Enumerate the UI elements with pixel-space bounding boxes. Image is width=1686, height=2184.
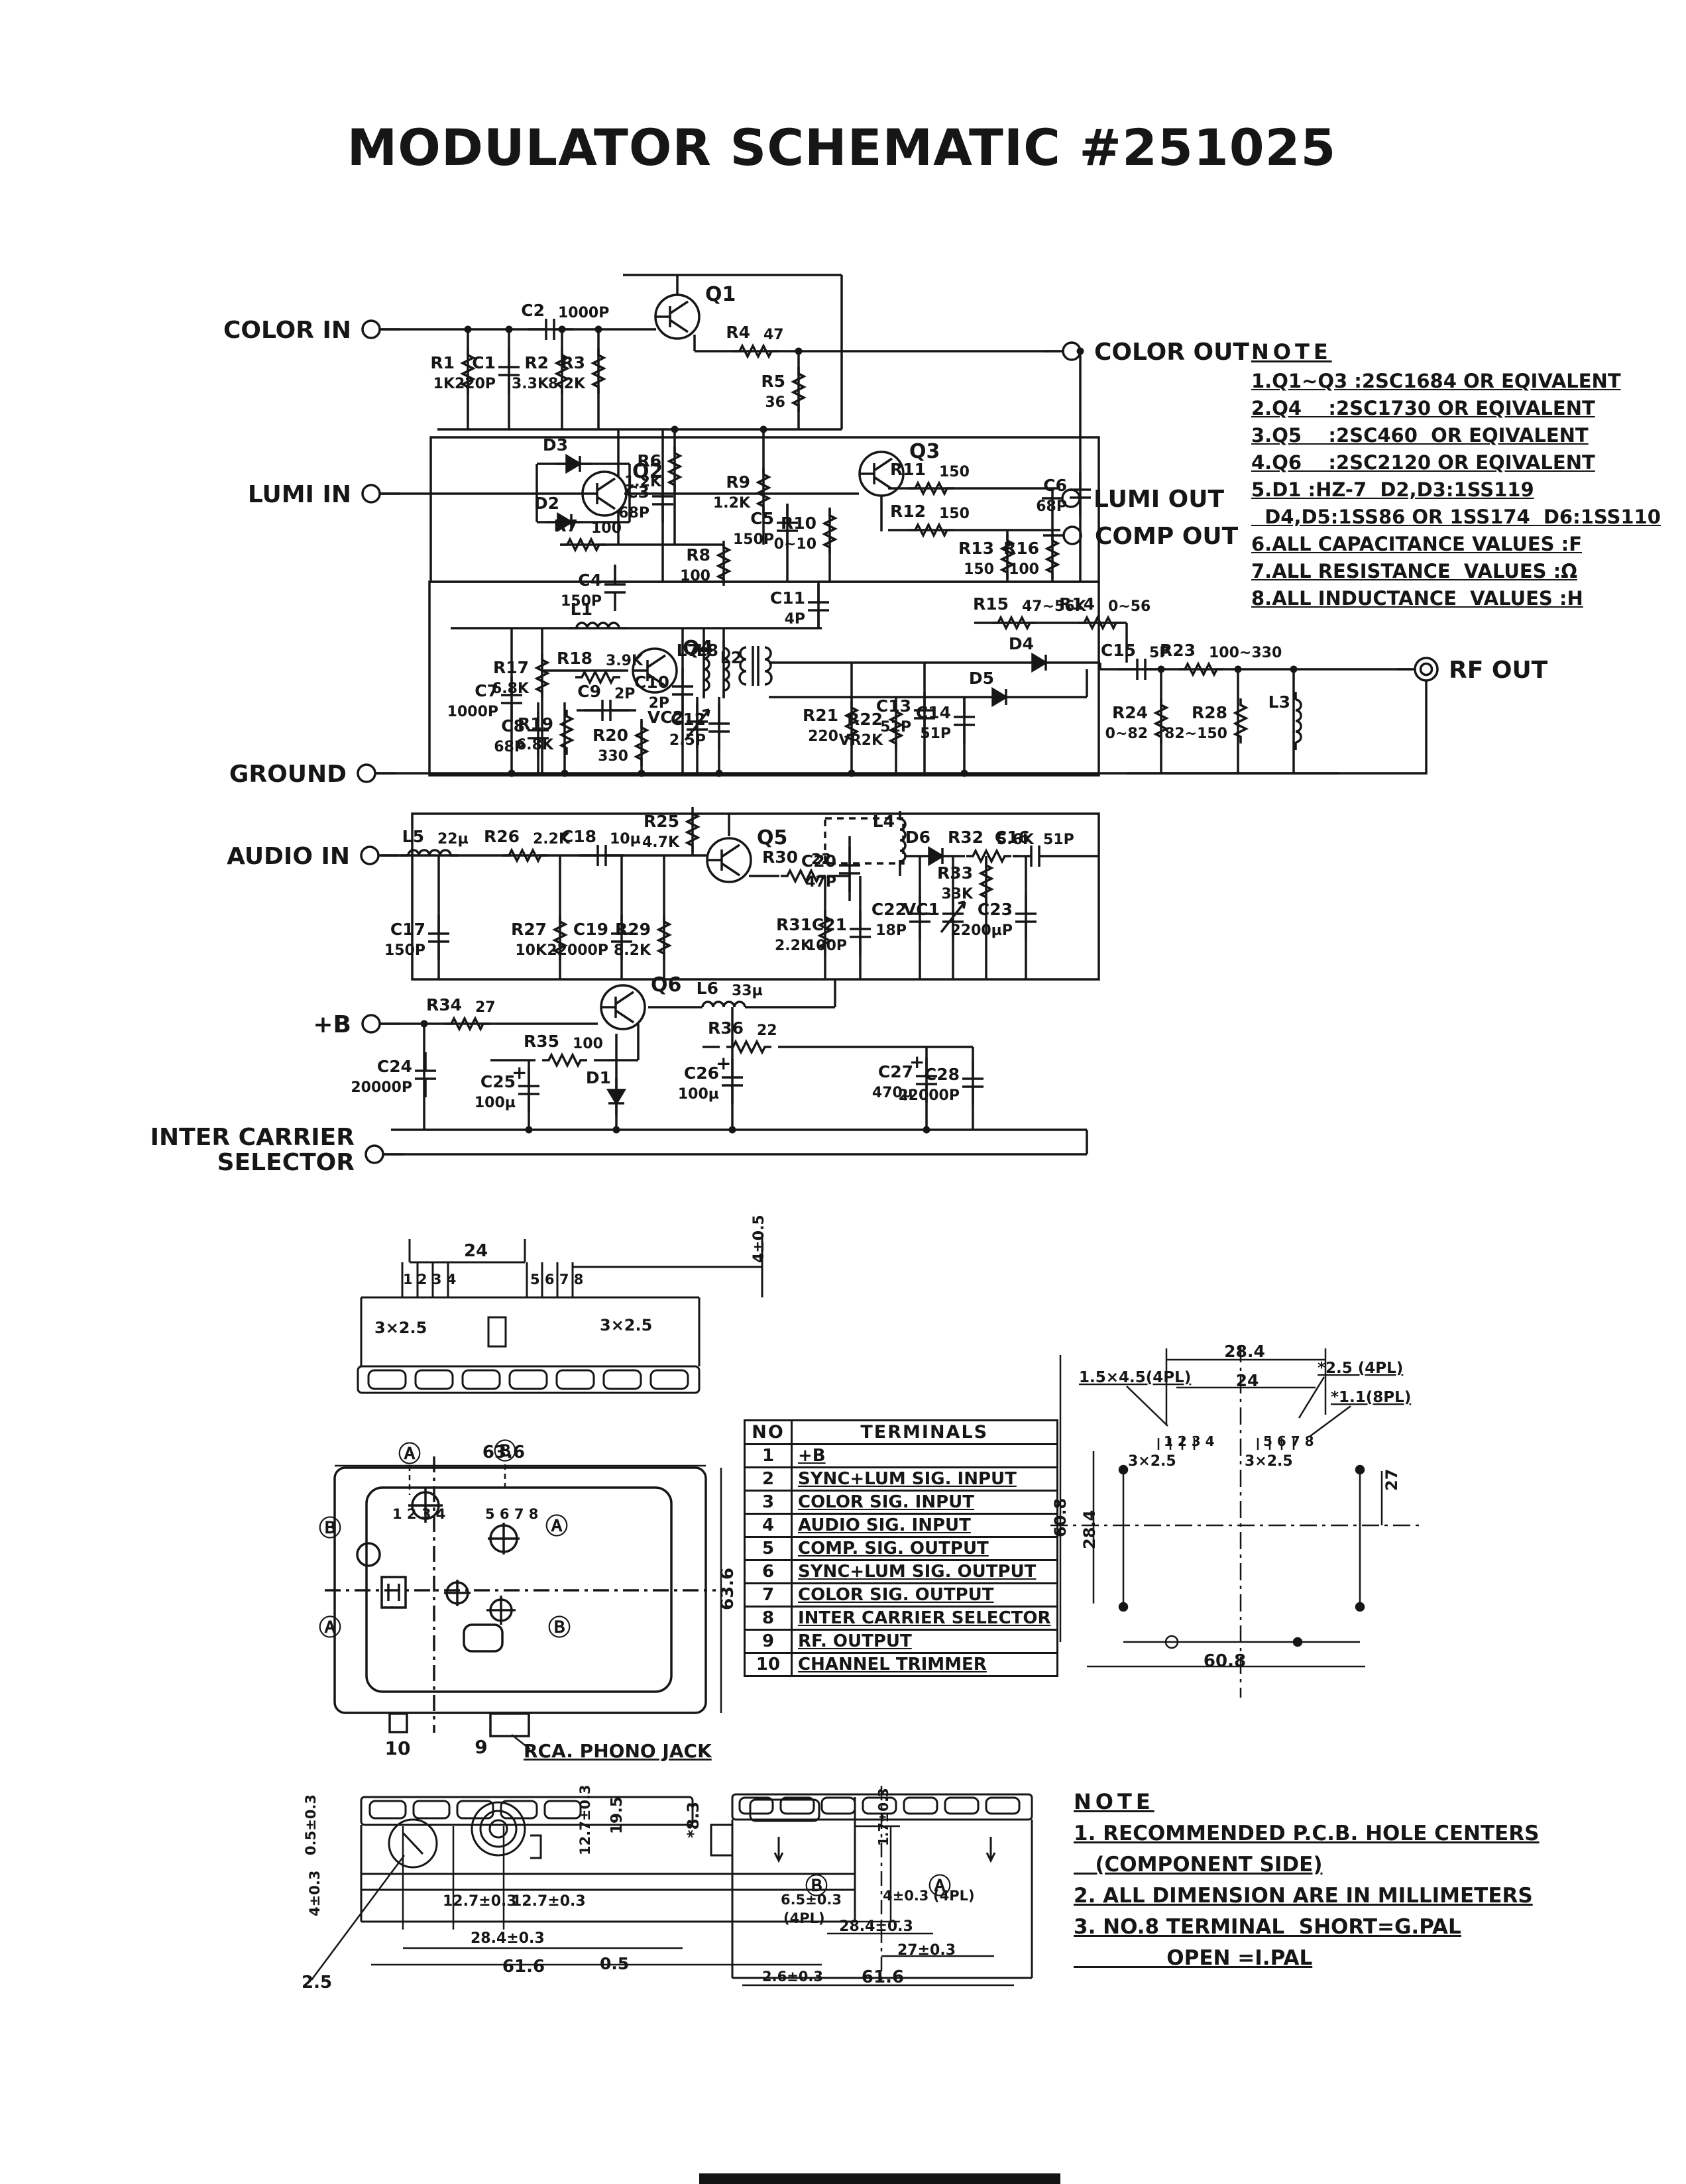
terminal-label: LUMI IN — [248, 481, 351, 508]
component-value: 1000P — [447, 704, 498, 720]
component-value: 4.7K — [642, 834, 680, 851]
component-label: R24 — [1112, 703, 1148, 722]
dimension-label: 1.5×4.5(4PL) — [1079, 1369, 1191, 1386]
junction-dot — [559, 326, 566, 333]
terminal-label: AUDIO IN — [227, 843, 350, 870]
component-label: C13 — [876, 696, 911, 716]
dimension-label: 3×2.5 — [1128, 1453, 1176, 1470]
junction-dot — [526, 1126, 533, 1134]
component-label: L8 — [697, 641, 718, 660]
terminal-color-out — [1042, 343, 1080, 360]
component-label: L7 — [677, 641, 699, 660]
terminal-label: LUMI OUT — [1094, 486, 1224, 513]
dimension-label: 4±0.5 — [751, 1215, 767, 1263]
dimension-label: 3×2.5 — [600, 1316, 652, 1335]
component-label: R10 — [781, 514, 816, 533]
component-value: 36 — [765, 394, 785, 411]
component-r10 — [824, 509, 835, 554]
dimension-label: *1.1(8PL) — [1331, 1389, 1411, 1406]
dimension-label: 60.8 — [1051, 1498, 1070, 1537]
component-value: 2200µP — [950, 922, 1013, 939]
component-label: C22 — [871, 900, 907, 919]
component-label: Q5 — [757, 826, 787, 849]
terminal-label: RF OUT — [1449, 657, 1548, 684]
component-r33 — [981, 859, 991, 904]
component-r26 — [502, 850, 547, 861]
component-value: 150 — [939, 464, 970, 480]
component-value: 2.5P — [669, 732, 706, 749]
component-value: 68P — [1036, 498, 1067, 515]
dimension-label: RCA. PHONO JACK — [524, 1740, 712, 1762]
annotation-labels: COLOR INLUMI INGROUNDAUDIO IN+BINTER CAR… — [150, 283, 1548, 1993]
junction-dot — [508, 770, 516, 777]
component-r23 — [1178, 664, 1223, 675]
component-label: C25 — [480, 1072, 516, 1091]
component-r7 — [561, 539, 606, 550]
component-value: 10µ — [610, 831, 641, 847]
junction-dot — [716, 770, 723, 777]
component-label: C16 — [995, 828, 1030, 847]
dimension-label: 19.5 — [608, 1796, 626, 1834]
terminal-label: +B — [313, 1011, 351, 1038]
component-r29 — [659, 915, 669, 960]
schematic-components — [400, 295, 1301, 1115]
junction-dot — [848, 770, 856, 777]
component-label: R35 — [524, 1032, 559, 1051]
component-label: R3 — [561, 353, 585, 372]
component-label: C18 — [561, 827, 596, 846]
terminal-label: SELECTOR — [217, 1149, 355, 1176]
component-label: C27 — [878, 1062, 913, 1081]
component-value: 330 — [598, 748, 628, 765]
component-label: R21 — [803, 706, 838, 725]
component-value: 150 — [964, 561, 994, 578]
dimension-label: Ⓑ — [548, 1615, 571, 1641]
junction-dot — [760, 426, 767, 433]
junction-dot — [795, 348, 803, 355]
component-label: C24 — [377, 1057, 412, 1076]
component-r12 — [909, 525, 954, 535]
terminal-rf-out — [1397, 658, 1437, 681]
component-value: 100 — [1009, 561, 1039, 578]
component-label: R16 — [1003, 539, 1039, 558]
component-value: VR2K — [839, 732, 883, 749]
junction-dot — [638, 770, 646, 777]
component-value: 18P — [875, 922, 907, 939]
component-label: D2 — [534, 494, 559, 513]
terminal-label: COLOR IN — [223, 317, 351, 344]
dimension-label: 10 — [385, 1737, 411, 1759]
component-value: 51P — [1043, 832, 1074, 848]
terminal-label: COLOR OUT — [1094, 339, 1249, 366]
component-r14 — [1078, 618, 1123, 628]
dimension-label: 6.5±0.3 — [781, 1892, 842, 1908]
component-value: 68P — [494, 739, 525, 755]
component-label: R20 — [592, 726, 628, 745]
component-label: R5 — [761, 372, 785, 391]
junction-dot — [1077, 348, 1084, 355]
component-label: R28 — [1192, 703, 1227, 722]
component-r11 — [909, 483, 954, 494]
dimension-label: 4±0.3 — [307, 1871, 323, 1916]
component-label: R8 — [686, 545, 710, 565]
component-l3 — [1296, 692, 1301, 750]
component-label: C15 — [1101, 641, 1136, 660]
component-r15 — [991, 618, 1037, 628]
component-label: R23 — [1160, 641, 1196, 660]
component-label: D1 — [586, 1068, 611, 1087]
component-value: 68P — [618, 505, 649, 521]
component-label: L2 — [720, 648, 742, 667]
dimension-label: 3×2.5 — [374, 1319, 427, 1337]
component-value: 6.8K — [492, 681, 530, 697]
component-label: Q1 — [705, 283, 736, 306]
mech-drawing-side-view-middle — [711, 1786, 1032, 1985]
component-value: 1K — [433, 376, 455, 392]
terminal-label: GROUND — [229, 761, 347, 788]
component-label: C19 — [573, 920, 608, 939]
dimension-label: 3×2.5 — [1245, 1453, 1293, 1470]
component-r5 — [793, 367, 804, 412]
component-r35 — [542, 1055, 587, 1065]
component-label: R11 — [890, 460, 926, 479]
dimension-label: 27±0.3 — [897, 1942, 956, 1959]
component-value: 2P — [614, 686, 635, 702]
junction-dot — [561, 770, 569, 777]
dimension-label: 4±0.3 — [883, 1888, 928, 1904]
dimension-label: + — [716, 1052, 731, 1074]
component-value: 100 — [680, 568, 710, 584]
component-r16 — [1047, 534, 1058, 579]
dimension-label: 1 2 3 4 — [403, 1272, 456, 1287]
component-c24 — [415, 1052, 436, 1097]
component-label: C9 — [577, 682, 601, 701]
dimension-label: (4PL) — [933, 1888, 975, 1904]
component-label: C10 — [634, 673, 669, 692]
component-l2 — [740, 646, 771, 686]
component-label: C5 — [750, 509, 774, 528]
component-value: 33µ — [732, 983, 763, 999]
dimension-label: 2.6±0.3 — [762, 1969, 823, 1985]
component-value: 3.3K — [512, 376, 549, 392]
terminal-lumi-in — [363, 485, 400, 502]
component-label: C28 — [925, 1065, 960, 1084]
dimension-label: 12.7±0.3 — [443, 1893, 517, 1910]
dimension-label: 28.4 — [1224, 1342, 1265, 1361]
junction-dot — [421, 1020, 428, 1028]
component-value: 0~10 — [774, 536, 816, 553]
dimension-label: 2.5 — [302, 1973, 332, 1993]
scan-artifact — [699, 2173, 1060, 2184]
dimension-label: *2.5 (4PL) — [1318, 1360, 1403, 1377]
component-value: 100P — [806, 938, 847, 954]
component-value: 100 — [573, 1036, 603, 1052]
component-r34 — [445, 1018, 490, 1029]
component-value: 20000P — [351, 1079, 412, 1096]
component-value: 4P — [785, 611, 805, 628]
component-q5 — [707, 838, 751, 882]
component-d6 — [917, 848, 954, 864]
component-label: L6 — [697, 979, 718, 998]
component-label: D5 — [969, 669, 994, 688]
component-label: R4 — [726, 323, 750, 342]
component-label: R26 — [484, 827, 520, 846]
component-value: 47P — [805, 874, 836, 891]
component-label: R25 — [644, 812, 679, 831]
component-label: R1 — [430, 353, 455, 372]
component-value: 3.9K — [606, 653, 644, 669]
component-label: C1 — [472, 353, 496, 372]
component-value: 1.2K — [713, 495, 751, 512]
component-r6 — [669, 447, 680, 492]
dimension-label: 5 6 7 8 — [485, 1506, 538, 1522]
component-value: 33K — [941, 886, 974, 902]
component-value: 100µ — [678, 1086, 719, 1103]
junction-dot — [595, 326, 602, 333]
component-label: L4 — [873, 812, 895, 831]
dimension-label: 24 — [1236, 1371, 1259, 1390]
component-value: 82~150 — [1164, 726, 1227, 742]
component-label: R33 — [937, 863, 973, 883]
component-r18 — [575, 672, 620, 682]
dimension-label: 9 — [475, 1736, 487, 1758]
component-r20 — [636, 721, 647, 766]
component-label: D3 — [543, 435, 568, 455]
component-r19 — [561, 710, 572, 755]
scanned-schematic-page: MODULATOR SCHEMATIC #251025 NOTE 1.Q1~Q3… — [0, 0, 1686, 2184]
dimension-label: 63.6 — [718, 1568, 738, 1610]
component-label: C26 — [684, 1064, 719, 1083]
dimension-label: 0.5±0.3 — [303, 1794, 319, 1855]
dimension-label: 1 2 3 4 — [392, 1506, 445, 1522]
terminal-inter-carrier — [366, 1146, 404, 1163]
component-r9 — [758, 468, 769, 513]
dimension-label: Ⓑ — [494, 1439, 516, 1465]
component-l1 — [569, 623, 627, 628]
component-label: R12 — [890, 502, 926, 521]
component-label: Q6 — [651, 973, 681, 997]
dimension-label: 5 6 7 8 — [1263, 1433, 1314, 1449]
dimension-label: + — [512, 1062, 527, 1083]
component-value: 100~330 — [1209, 645, 1282, 661]
component-l4 — [900, 811, 905, 869]
component-value: 22000P — [547, 942, 608, 959]
component-label: D4 — [1009, 634, 1034, 653]
component-label: C17 — [390, 920, 425, 939]
dimension-label: 24 — [464, 1241, 488, 1261]
component-label: C14 — [916, 703, 951, 722]
component-label: C4 — [578, 571, 602, 590]
component-label: L3 — [1268, 692, 1290, 712]
component-r4 — [733, 346, 778, 356]
junction-dot — [961, 770, 968, 777]
terminal-ground — [358, 765, 396, 782]
component-label: C6 — [1043, 476, 1067, 495]
dimension-label: 1.7±0.3 — [875, 1788, 891, 1846]
dimension-label: Ⓐ — [319, 1615, 341, 1641]
component-label: R2 — [524, 353, 549, 372]
component-label: C23 — [978, 900, 1013, 919]
component-q1 — [655, 295, 699, 339]
component-value: 10K — [515, 942, 547, 959]
component-value: 8.2K — [548, 376, 586, 392]
junction-dot — [506, 326, 513, 333]
component-l6 — [695, 1002, 753, 1007]
junction-dot — [1290, 666, 1298, 673]
component-d5 — [981, 689, 1018, 705]
component-value: 100 — [591, 520, 622, 537]
component-r3 — [593, 349, 604, 394]
component-value: 22000P — [898, 1087, 960, 1104]
component-label: R9 — [726, 472, 750, 492]
terminal-audio-in — [361, 847, 399, 864]
component-label: Q2 — [632, 460, 663, 483]
terminal-label: INTER CARRIER — [150, 1124, 355, 1151]
component-label: R15 — [973, 594, 1009, 614]
component-r17 — [537, 653, 547, 698]
mech-drawing-top-view — [325, 1456, 721, 1749]
dimension-label: + — [909, 1051, 925, 1073]
component-label: L1 — [571, 600, 592, 619]
dimension-label: 28.4±0.3 — [839, 1918, 913, 1935]
component-value: 51P — [920, 726, 951, 742]
component-label: C21 — [812, 915, 847, 934]
junction-dot — [729, 1126, 736, 1134]
component-value: 220P — [455, 376, 496, 392]
component-label: R36 — [708, 1018, 744, 1038]
component-l5 — [400, 850, 459, 855]
dimension-label: Ⓑ — [319, 1515, 341, 1542]
component-label: R30 — [762, 847, 798, 867]
junction-dot — [465, 326, 472, 333]
component-label: R29 — [615, 920, 651, 939]
component-label: C8 — [501, 716, 525, 736]
component-value: 150P — [733, 531, 774, 548]
component-value: 1000P — [558, 305, 609, 321]
component-label: R34 — [426, 995, 462, 1014]
component-label: R7 — [553, 516, 578, 535]
dimension-label: 28.4±0.3 — [471, 1930, 545, 1947]
component-c16 — [1013, 846, 1058, 867]
component-label: C2 — [521, 301, 545, 320]
junction-dot — [923, 1126, 930, 1134]
schematic-canvas: COLOR INLUMI INGROUNDAUDIO IN+BINTER CAR… — [0, 0, 1686, 2184]
terminal-label: COMP OUT — [1095, 523, 1239, 550]
component-value: 100µ — [475, 1095, 516, 1111]
component-label: D6 — [905, 828, 930, 847]
component-d4 — [1021, 655, 1058, 671]
component-value: 150P — [384, 942, 425, 959]
dimension-label: 28.4 — [1080, 1510, 1099, 1549]
component-label: R14 — [1059, 594, 1095, 614]
mech-drawing-pin-side-view — [358, 1234, 762, 1393]
component-label: C12 — [671, 710, 706, 729]
component-value: 22µ — [437, 831, 469, 847]
dimension-label: Ⓐ — [545, 1513, 568, 1540]
component-c4 — [604, 566, 626, 611]
component-label: C11 — [770, 588, 805, 608]
component-label: R31 — [776, 915, 812, 934]
component-value: 22 — [757, 1022, 777, 1039]
junction-dot — [671, 426, 679, 433]
terminal--b — [363, 1015, 400, 1032]
dimension-label: 12.7±0.3 — [512, 1893, 586, 1910]
dimension-label: 60.8 — [1204, 1651, 1246, 1671]
component-value: 8.2K — [614, 942, 651, 959]
component-q6 — [601, 985, 645, 1029]
component-value: 150 — [939, 506, 970, 522]
component-label: R32 — [948, 828, 983, 847]
component-label: R17 — [493, 658, 529, 677]
junction-dot — [613, 1126, 620, 1134]
dimension-label: 61.6 — [502, 1957, 545, 1977]
component-label: R18 — [557, 649, 592, 668]
component-value: 0~82 — [1105, 726, 1148, 742]
dimension-label: 61.6 — [862, 1967, 904, 1987]
junction-dot — [1158, 666, 1165, 673]
dimension-label: 12.7±0.3 — [577, 1784, 593, 1855]
component-value: 51P — [880, 719, 911, 736]
component-label: C3 — [626, 482, 649, 502]
dimension-label: 1 2 3 4 — [1164, 1433, 1215, 1449]
component-label: R27 — [511, 920, 547, 939]
dimension-label: 27 — [1382, 1469, 1401, 1491]
dimension-label: Ⓐ — [398, 1441, 421, 1468]
junction-dot — [1235, 666, 1242, 673]
component-label: C20 — [801, 851, 836, 871]
component-value: 47 — [763, 327, 784, 343]
component-value: 220 — [808, 728, 838, 745]
component-r32 — [966, 851, 1011, 861]
component-value: 27 — [475, 999, 496, 1016]
component-d3 — [555, 456, 592, 472]
dimension-label: 0.5 — [600, 1954, 629, 1973]
component-r8 — [718, 541, 729, 586]
terminal-color-in — [363, 321, 400, 338]
component-label: VC1 — [903, 900, 940, 919]
dimension-label: *8.3 — [684, 1802, 702, 1838]
dimension-label: 5 6 7 8 — [530, 1272, 583, 1287]
component-label: R13 — [958, 539, 994, 558]
component-value: 0~56 — [1108, 598, 1151, 615]
component-label: L5 — [402, 827, 424, 846]
dimension-label: (4PL) — [783, 1910, 825, 1926]
